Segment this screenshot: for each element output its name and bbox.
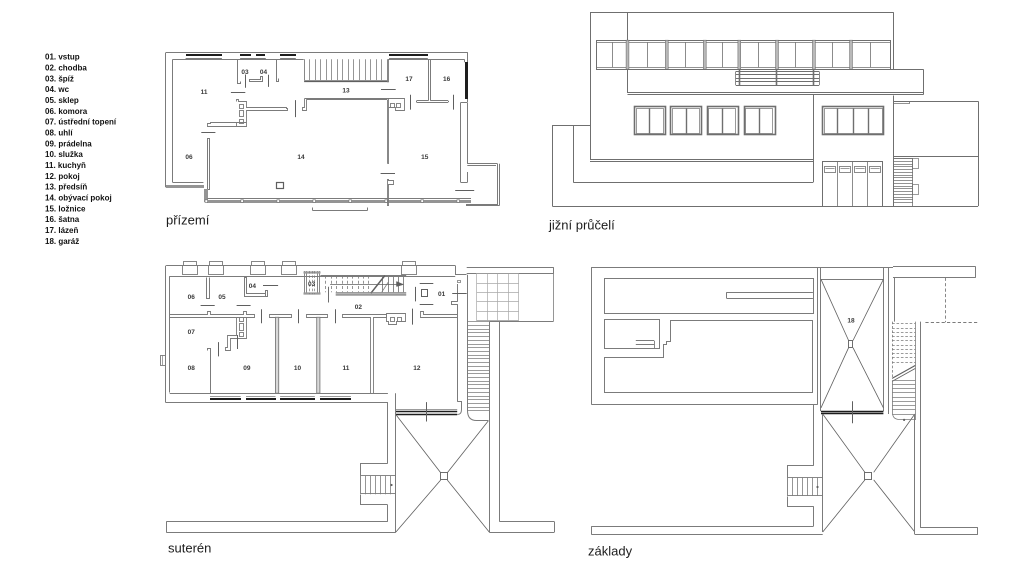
svg-text:09. prádelna: 09. prádelna: [45, 139, 92, 148]
svg-text:01: 01: [438, 291, 446, 298]
svg-text:13: 13: [342, 87, 350, 94]
svg-text:03. špíž: 03. špíž: [45, 74, 74, 83]
svg-text:jižní průčelí: jižní průčelí: [548, 217, 615, 232]
svg-text:10. služka: 10. služka: [45, 150, 83, 159]
svg-text:02: 02: [355, 304, 363, 311]
svg-text:05: 05: [218, 294, 226, 301]
svg-text:11: 11: [201, 89, 208, 96]
svg-text:16: 16: [443, 76, 451, 83]
svg-text:14: 14: [297, 154, 305, 161]
svg-text:12. pokoj: 12. pokoj: [45, 172, 80, 181]
svg-text:10: 10: [294, 365, 302, 372]
svg-text:04: 04: [260, 69, 268, 76]
svg-text:04. wc: 04. wc: [45, 85, 70, 94]
svg-text:05. sklep: 05. sklep: [45, 96, 79, 105]
svg-text:17: 17: [405, 76, 413, 83]
svg-text:16. šatna: 16. šatna: [45, 215, 80, 224]
svg-text:15: 15: [421, 154, 429, 161]
svg-text:14. obývací pokoj: 14. obývací pokoj: [45, 193, 112, 202]
svg-text:06: 06: [188, 294, 196, 301]
svg-text:08. uhlí: 08. uhlí: [45, 129, 73, 138]
svg-text:11. kuchyň: 11. kuchyň: [45, 161, 86, 170]
svg-text:07: 07: [188, 329, 196, 336]
svg-text:12: 12: [413, 365, 421, 372]
svg-text:03: 03: [241, 69, 249, 76]
svg-text:01. vstup: 01. vstup: [45, 53, 80, 62]
svg-text:základy: základy: [588, 543, 633, 558]
svg-text:suterén: suterén: [168, 540, 211, 555]
svg-text:04: 04: [249, 283, 257, 290]
svg-text:11: 11: [342, 365, 349, 372]
svg-text:02. chodba: 02. chodba: [45, 64, 87, 73]
svg-text:09: 09: [243, 365, 251, 372]
svg-text:06. komora: 06. komora: [45, 107, 88, 116]
svg-text:18: 18: [847, 318, 855, 325]
svg-text:18. garáž: 18. garáž: [45, 237, 79, 246]
svg-text:17. lázeň: 17. lázeň: [45, 226, 78, 235]
svg-text:06: 06: [185, 154, 193, 161]
svg-text:15. ložnice: 15. ložnice: [45, 204, 86, 213]
svg-text:08: 08: [188, 365, 196, 372]
svg-text:07. ústřední topení: 07. ústřední topení: [45, 118, 117, 127]
svg-text:13. předsíň: 13. předsíň: [45, 183, 87, 192]
svg-text:přízemí: přízemí: [166, 213, 210, 228]
svg-text:03: 03: [308, 281, 316, 288]
